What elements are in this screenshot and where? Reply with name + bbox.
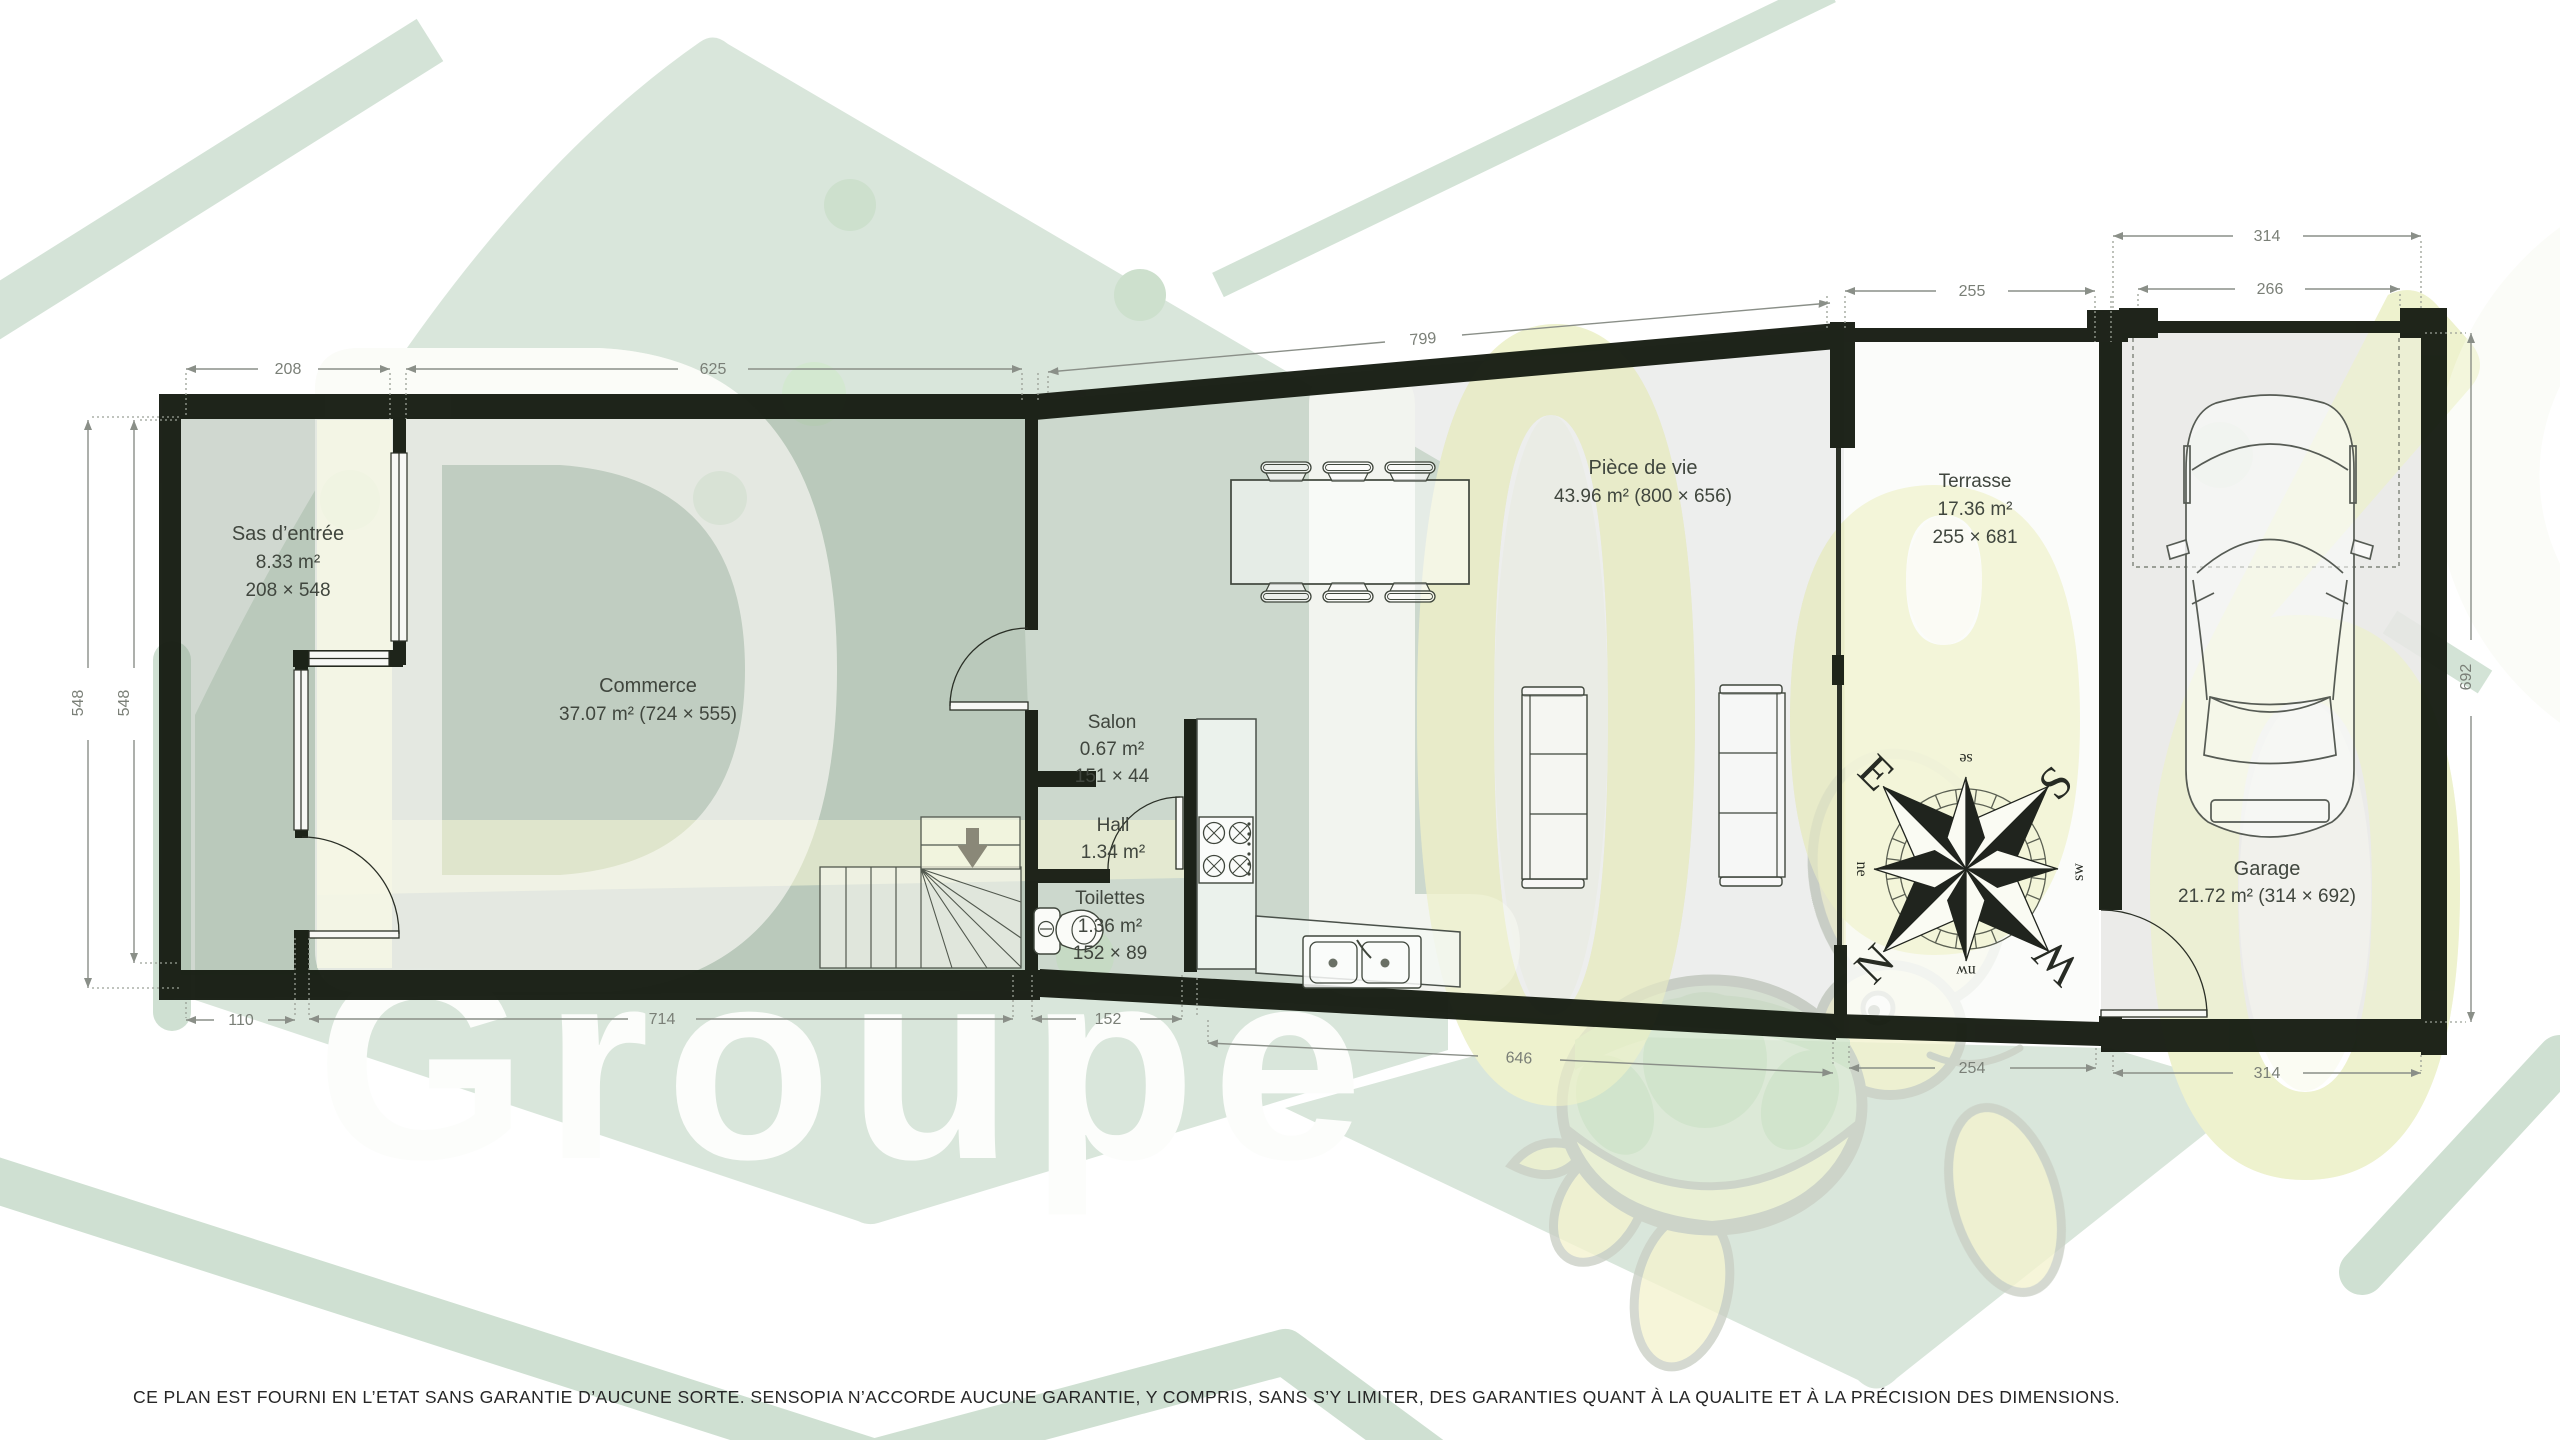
svg-text:548: 548 — [70, 690, 87, 717]
svg-text:548: 548 — [116, 690, 133, 717]
svg-text:799: 799 — [1409, 330, 1437, 349]
svg-text:sw: sw — [2070, 863, 2087, 881]
svg-text:208 × 548: 208 × 548 — [245, 580, 330, 601]
svg-text:255 × 681: 255 × 681 — [1932, 527, 2017, 548]
svg-text:Sas d’entrée: Sas d’entrée — [232, 523, 344, 545]
svg-text:152 × 89: 152 × 89 — [1073, 943, 1148, 964]
svg-text:714: 714 — [649, 1011, 676, 1028]
svg-text:Terrasse: Terrasse — [1939, 471, 2012, 492]
svg-text:Hall: Hall — [1097, 815, 1130, 836]
svg-text:314: 314 — [2254, 1065, 2281, 1082]
svg-text:CE PLAN EST FOURNI EN L’ETAT S: CE PLAN EST FOURNI EN L’ETAT SANS GARANT… — [133, 1387, 2120, 1407]
svg-text:1.36 m²: 1.36 m² — [1078, 916, 1142, 937]
svg-text:17.36 m²: 17.36 m² — [1938, 499, 2013, 520]
svg-text:ne: ne — [1853, 861, 1870, 876]
svg-text:21.72 m² (314 × 692): 21.72 m² (314 × 692) — [2178, 886, 2356, 907]
svg-text:110: 110 — [228, 1012, 254, 1029]
svg-text:1.34 m²: 1.34 m² — [1081, 842, 1145, 863]
svg-text:152: 152 — [1095, 1011, 1122, 1028]
svg-text:646: 646 — [1505, 1049, 1533, 1067]
svg-text:Toilettes: Toilettes — [1075, 888, 1145, 909]
svg-text:37.07 m² (724 × 555): 37.07 m² (724 × 555) — [559, 704, 737, 725]
svg-text:255: 255 — [1959, 283, 1986, 300]
svg-text:se: se — [1959, 750, 1972, 767]
svg-text:625: 625 — [700, 361, 727, 378]
svg-text:208: 208 — [275, 361, 302, 378]
svg-text:314: 314 — [2254, 228, 2281, 245]
svg-text:Salon: Salon — [1088, 712, 1137, 733]
svg-text:692: 692 — [2458, 664, 2475, 691]
svg-text:151 × 44: 151 × 44 — [1075, 766, 1150, 787]
svg-text:nw: nw — [1956, 962, 1976, 979]
svg-text:254: 254 — [1959, 1060, 1986, 1077]
svg-text:266: 266 — [2257, 281, 2284, 298]
svg-text:Pièce de vie: Pièce de vie — [1589, 457, 1698, 479]
svg-text:43.96 m² (800 × 656): 43.96 m² (800 × 656) — [1554, 486, 1732, 507]
svg-text:0.67 m²: 0.67 m² — [1080, 739, 1144, 760]
svg-text:8.33 m²: 8.33 m² — [256, 552, 320, 573]
svg-text:Garage: Garage — [2234, 858, 2301, 880]
svg-text:Commerce: Commerce — [599, 675, 697, 697]
